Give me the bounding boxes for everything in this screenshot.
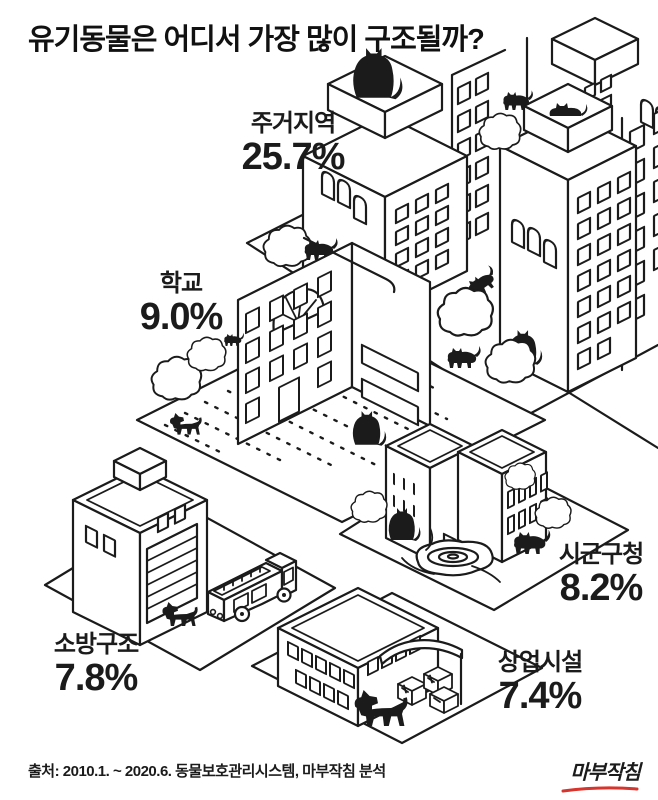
category-value: 9.0%	[140, 298, 223, 337]
tree-icon	[438, 288, 493, 336]
category-value: 7.8%	[54, 659, 138, 698]
source-note: 출처: 2010.1. ~ 2020.6. 동물보호관리시스템, 마부작침 분석	[28, 760, 386, 781]
category-value: 25.7%	[242, 138, 345, 177]
infographic-page: 유기동물은 어디서 가장 많이 구조될까?	[0, 0, 658, 800]
label-fire-rescue: 소방구조 7.8%	[54, 633, 138, 698]
category-name: 소방구조	[54, 633, 138, 657]
label-school: 학교 9.0%	[140, 272, 223, 337]
label-district-office: 시군구청 8.2%	[559, 543, 643, 608]
label-residential: 주거지역 25.7%	[242, 112, 345, 177]
category-name: 상업시설	[498, 651, 582, 675]
label-commercial: 상업시설 7.4%	[498, 651, 582, 716]
category-name: 학교	[140, 272, 223, 296]
tree-icon	[505, 463, 535, 489]
logo-underline-icon	[560, 785, 640, 793]
tree-icon	[535, 497, 571, 528]
category-value: 8.2%	[559, 569, 643, 608]
page-title: 유기동물은 어디서 가장 많이 구조될까?	[28, 16, 484, 58]
category-value: 7.4%	[498, 677, 582, 716]
tree-icon	[263, 226, 310, 267]
tree-icon	[479, 113, 520, 149]
cat-icon	[448, 346, 481, 368]
category-name: 주거지역	[242, 112, 345, 136]
logo-text: 마부작침	[560, 756, 640, 785]
tree-icon	[351, 491, 387, 522]
tree-icon	[486, 340, 536, 383]
logo: 마부작침	[560, 756, 640, 793]
tree-icon	[187, 337, 226, 370]
category-name: 시군구청	[559, 543, 643, 567]
